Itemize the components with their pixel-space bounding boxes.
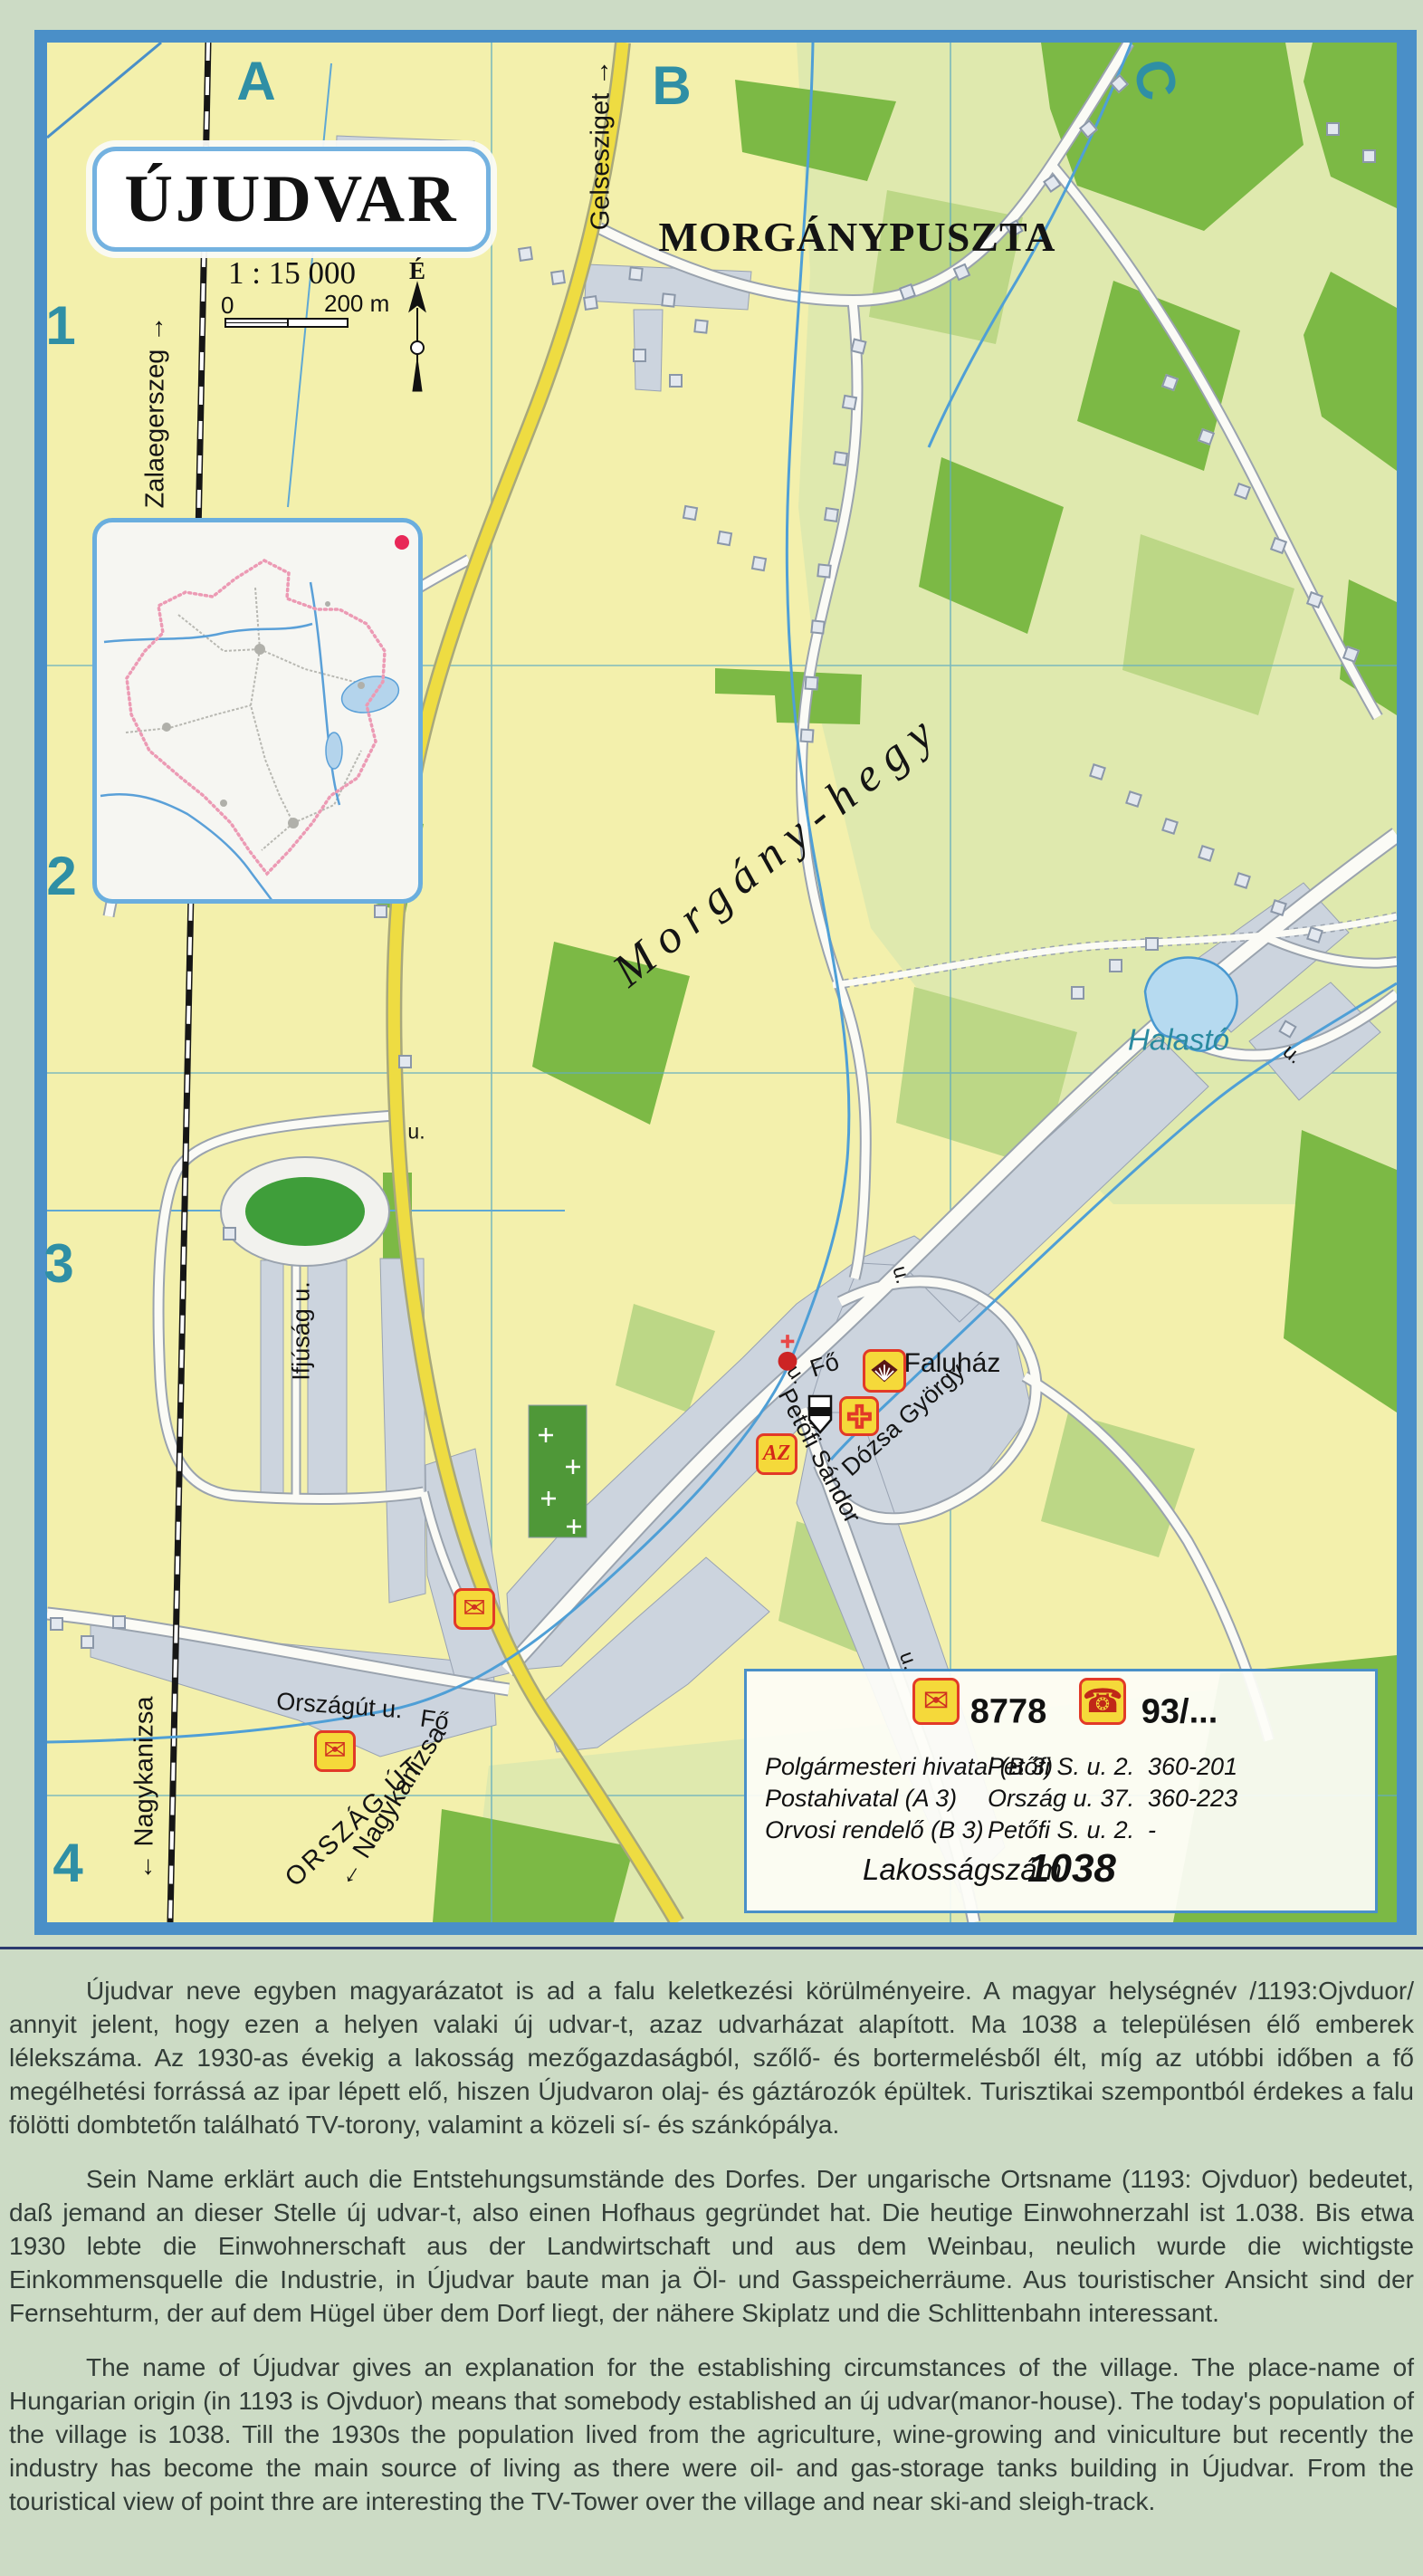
- info-place-2: Orvosi rendelő (B 3): [765, 1816, 984, 1844]
- inset-lake-small: [326, 733, 342, 769]
- building: [550, 270, 566, 285]
- building: [824, 507, 839, 522]
- info-address-2: Petőfi S. u. 2.: [988, 1816, 1134, 1844]
- envelope-icon: ✉: [912, 1678, 960, 1725]
- building: [50, 1617, 63, 1631]
- paragraph-hungarian: Újudvar neve egyben magyarázatot is ad a…: [9, 1974, 1414, 2141]
- building: [661, 292, 675, 307]
- building: [374, 905, 387, 918]
- sports-field: [245, 1177, 365, 1246]
- north-indicator: É: [396, 257, 438, 402]
- building: [583, 295, 598, 311]
- building: [810, 619, 825, 634]
- building: [223, 1227, 236, 1240]
- info-address-1: Ország u. 37.: [988, 1785, 1134, 1813]
- building: [628, 266, 643, 281]
- north-letter: É: [409, 257, 425, 285]
- page-divider: [0, 1947, 1423, 1949]
- building: [833, 451, 848, 466]
- az-icon: AZ: [756, 1433, 797, 1475]
- grid-label-row-1: 1: [45, 299, 75, 353]
- shield-icon: [807, 1393, 833, 1440]
- grid-label-row-3: 3: [43, 1237, 73, 1291]
- label-morganypuszta: MORGÁNYPUSZTA: [659, 216, 1056, 258]
- building: [112, 1615, 126, 1629]
- cross-icon: [839, 1396, 879, 1436]
- inset-rivers: [100, 582, 339, 904]
- description-texts: Újudvar neve egyben magyarázatot is ad a…: [9, 1974, 1414, 2539]
- postal-code: 8778: [970, 1693, 1047, 1732]
- building: [817, 563, 831, 578]
- label-halasto: Halastó: [1128, 1025, 1229, 1055]
- building: [1145, 937, 1159, 951]
- scale-zero: 0: [221, 292, 234, 320]
- envelope-icon: ✉: [454, 1588, 495, 1630]
- building: [683, 505, 698, 521]
- map-title-box: ÚJUDVAR: [92, 147, 491, 252]
- church-icon: [775, 1333, 800, 1381]
- label-fo-utca-west: Fő: [419, 1706, 451, 1734]
- building: [1109, 959, 1122, 972]
- label-zalaegerszeg: Zalaegerszeg →: [143, 316, 169, 509]
- building: [1326, 122, 1340, 136]
- page: { "map": { "title": "ÚJUDVAR", "scale_te…: [0, 0, 1423, 2576]
- label-gelsesziget: Gelsesziget →: [588, 60, 615, 231]
- building: [751, 556, 767, 571]
- info-place-1: Postahivatal (A 3): [765, 1785, 957, 1813]
- scale-ratio: 1 : 15 000: [228, 255, 356, 292]
- population-value: 1038: [1027, 1846, 1116, 1891]
- inset-county-boundary: [127, 560, 385, 874]
- inset-lake: [338, 671, 402, 718]
- label-nagykanizsa-rail: ← Nagykanizsa: [132, 1696, 158, 1880]
- page-title: ÚJUDVAR: [124, 161, 458, 238]
- building: [693, 319, 708, 333]
- building: [717, 531, 732, 546]
- building: [518, 246, 533, 262]
- building: [842, 395, 857, 410]
- inset-overview-map: [92, 518, 423, 904]
- grid-label-col-b: B: [652, 59, 691, 113]
- phone-icon: ☎: [1079, 1678, 1126, 1725]
- building: [669, 374, 683, 388]
- info-phone-2: -: [1148, 1816, 1156, 1844]
- grid-label-row-2: 2: [46, 849, 76, 904]
- building: [81, 1635, 94, 1649]
- info-phone-1: 360-223: [1148, 1785, 1237, 1813]
- inset-location-marker: [395, 535, 409, 550]
- info-box: 8778 93/... Polgármesteri hivatal (B 3)P…: [744, 1669, 1378, 1913]
- building: [804, 675, 818, 690]
- paragraph-english: The name of Újudvar gives an explanation…: [9, 2351, 1414, 2518]
- envelope-icon: ✉: [314, 1730, 356, 1772]
- label-u-3: u.: [407, 1122, 425, 1143]
- info-phone-0: 360-201: [1148, 1753, 1237, 1781]
- building: [398, 1055, 412, 1068]
- paragraph-german: Sein Name erklärt auch die Entstehungsum…: [9, 2162, 1414, 2330]
- building: [1071, 986, 1084, 1000]
- scale-end: 200 m: [324, 290, 389, 318]
- building: [633, 349, 646, 362]
- grid-label-col-a: A: [236, 54, 275, 109]
- label-ifjusag-u: Ifjúság u.: [290, 1281, 314, 1381]
- grid-label-row-4: 4: [53, 1836, 82, 1891]
- book-icon: [863, 1349, 906, 1393]
- cemetery: [529, 1405, 587, 1537]
- building: [799, 728, 814, 742]
- phone-prefix: 93/...: [1141, 1693, 1218, 1732]
- scale-bar: [224, 318, 349, 328]
- info-address-0: Petőfi S. u. 2.: [988, 1753, 1134, 1781]
- building: [1362, 149, 1376, 163]
